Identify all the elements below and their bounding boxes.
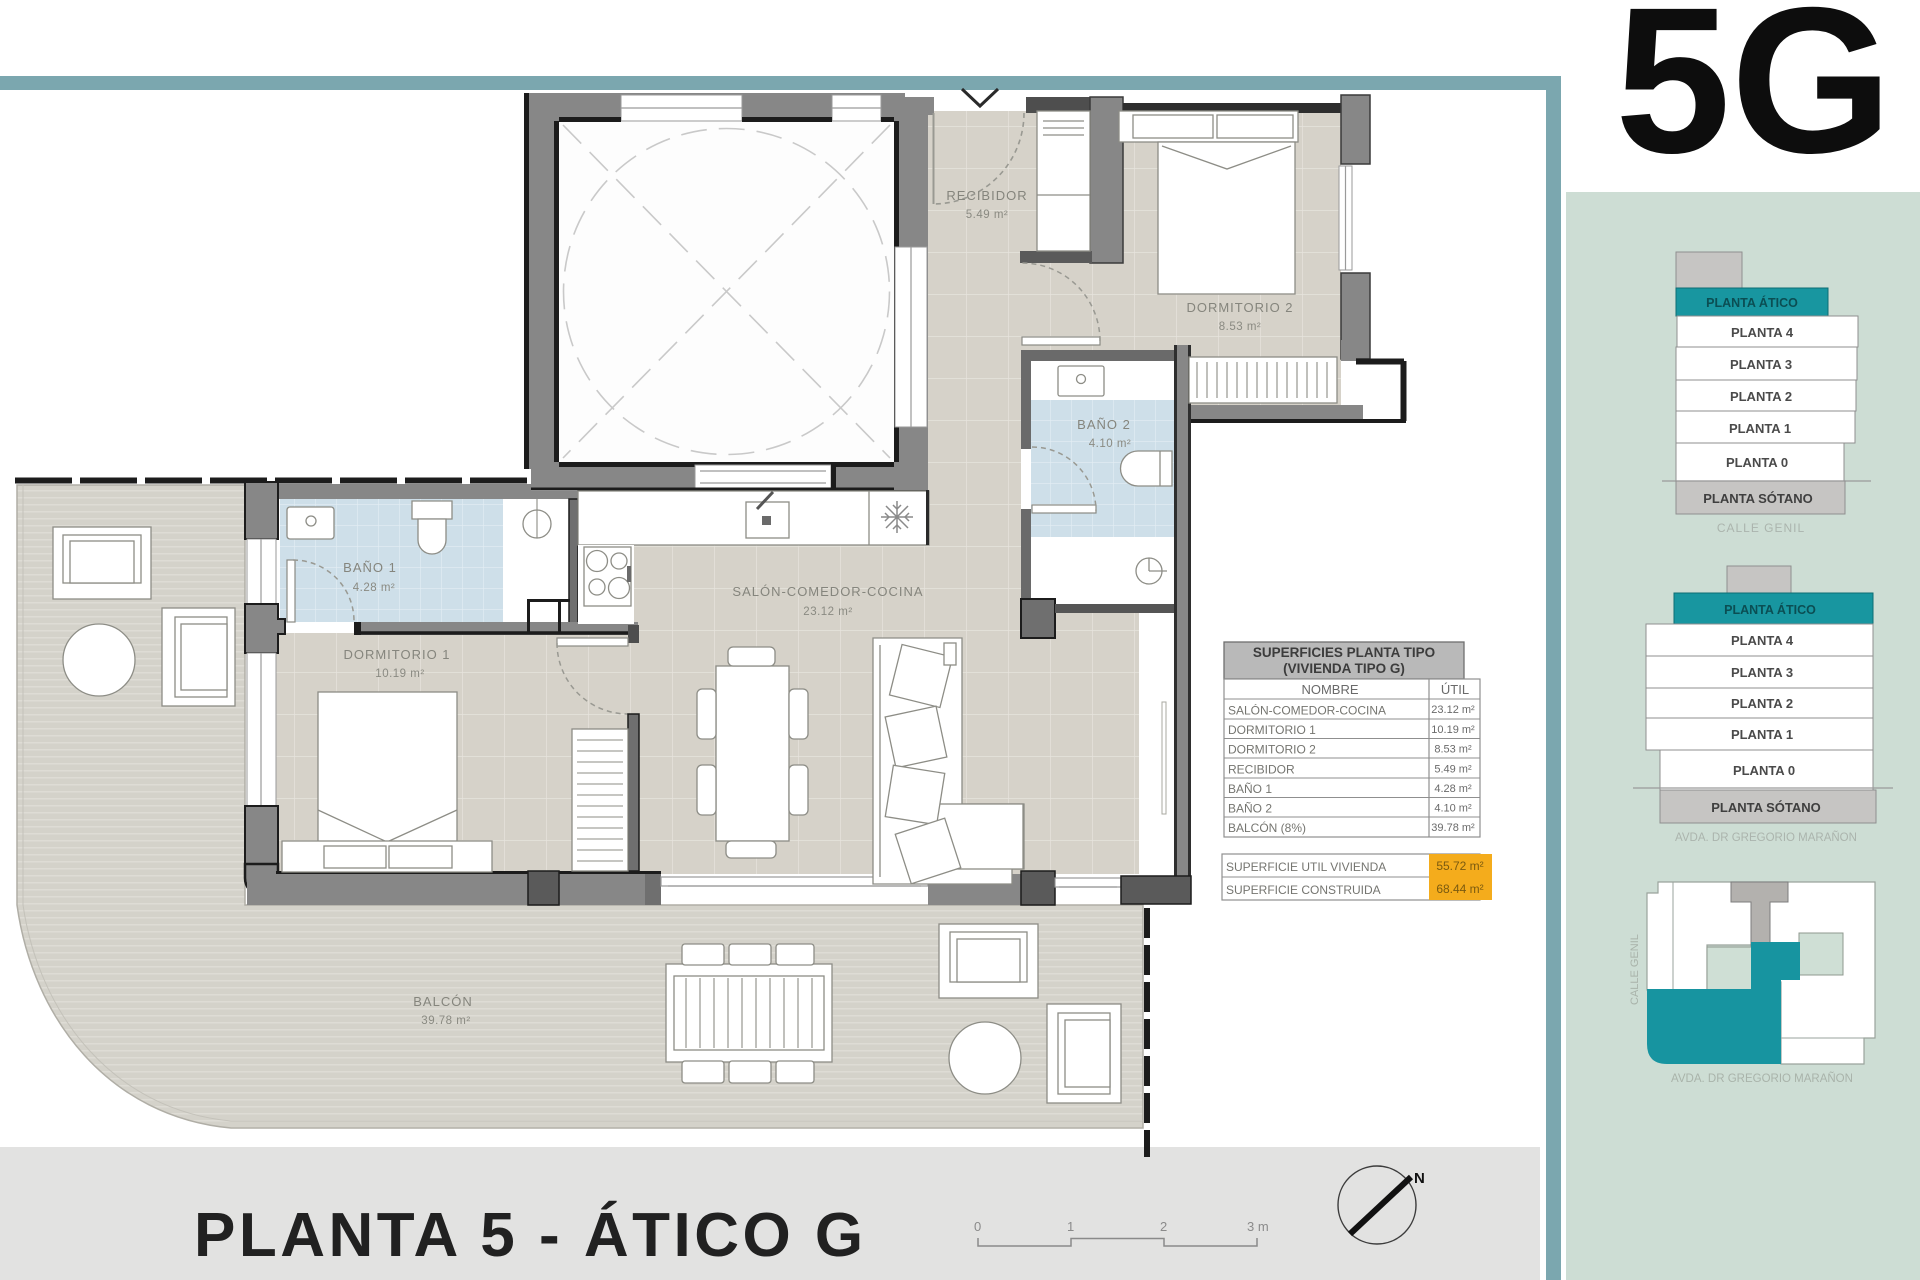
svg-text:8.53 m²: 8.53 m² [1434,744,1472,756]
svg-text:PLANTA ÁTICO: PLANTA ÁTICO [1724,602,1816,617]
svg-text:PLANTA SÓTANO: PLANTA SÓTANO [1711,800,1821,815]
svg-text:23.12 m²: 23.12 m² [803,606,852,618]
svg-text:4.10 m²: 4.10 m² [1089,438,1132,450]
svg-text:BAÑO 1: BAÑO 1 [343,560,397,575]
svg-text:5G: 5G [1615,0,1892,197]
svg-text:AVDA. DR GREGORIO MARAÑON: AVDA. DR GREGORIO MARAÑON [1671,1072,1853,1085]
svg-text:1: 1 [1067,1219,1074,1234]
svg-text:PLANTA 4: PLANTA 4 [1731,325,1794,340]
svg-text:RECIBIDOR: RECIBIDOR [946,188,1027,203]
svg-text:DORMITORIO 1: DORMITORIO 1 [1228,723,1316,737]
svg-text:N: N [1414,1170,1425,1187]
svg-text:68.44 m²: 68.44 m² [1436,882,1483,896]
svg-text:PLANTA 3: PLANTA 3 [1731,665,1793,680]
svg-text:3 m: 3 m [1247,1219,1269,1234]
svg-text:PLANTA SÓTANO: PLANTA SÓTANO [1703,491,1813,506]
svg-text:5.49 m²: 5.49 m² [966,209,1009,221]
svg-text:PLANTA 3: PLANTA 3 [1730,357,1792,372]
svg-text:PLANTA 5 - ÁTICO G: PLANTA 5 - ÁTICO G [194,1201,867,1270]
svg-text:SALÓN-COMEDOR-COCINA: SALÓN-COMEDOR-COCINA [732,584,923,599]
svg-text:(VIVIENDA TIPO G): (VIVIENDA TIPO G) [1283,661,1405,676]
svg-text:PLANTA 1: PLANTA 1 [1731,727,1793,742]
svg-text:BALCÓN (8%): BALCÓN (8%) [1228,820,1306,835]
svg-text:PLANTA 0: PLANTA 0 [1726,455,1788,470]
svg-text:4.28 m²: 4.28 m² [353,582,396,594]
svg-text:PLANTA 2: PLANTA 2 [1730,389,1792,404]
svg-text:39.78 m²: 39.78 m² [1431,822,1475,834]
svg-text:SUPERFICIES PLANTA TIPO: SUPERFICIES PLANTA TIPO [1253,645,1435,660]
svg-text:ÚTIL: ÚTIL [1441,682,1469,697]
svg-text:PLANTA 2: PLANTA 2 [1731,696,1793,711]
svg-text:5.49 m²: 5.49 m² [1434,764,1472,776]
svg-text:BAÑO 2: BAÑO 2 [1077,417,1131,432]
svg-text:0: 0 [974,1219,981,1234]
svg-text:RECIBIDOR: RECIBIDOR [1228,763,1295,777]
svg-text:10.19 m²: 10.19 m² [375,668,424,680]
svg-text:2: 2 [1160,1219,1167,1234]
svg-text:BAÑO 2: BAÑO 2 [1228,802,1272,816]
svg-text:DORMITORIO 2: DORMITORIO 2 [1186,300,1293,315]
svg-text:CALLE GENIL: CALLE GENIL [1629,934,1641,1005]
svg-text:PLANTA 4: PLANTA 4 [1731,633,1794,648]
svg-text:39.78 m²: 39.78 m² [421,1015,470,1027]
svg-text:SUPERFICIE CONSTRUIDA: SUPERFICIE CONSTRUIDA [1226,883,1381,897]
svg-text:AVDA. DR GREGORIO MARAÑON: AVDA. DR GREGORIO MARAÑON [1675,831,1857,844]
svg-text:4.10 m²: 4.10 m² [1434,803,1472,815]
svg-text:NOMBRE: NOMBRE [1301,682,1358,697]
svg-text:BAÑO 1: BAÑO 1 [1228,782,1272,796]
svg-text:PLANTA 0: PLANTA 0 [1733,763,1795,778]
svg-text:DORMITORIO 2: DORMITORIO 2 [1228,743,1316,757]
svg-text:23.12 m²: 23.12 m² [1431,704,1475,716]
svg-text:55.72 m²: 55.72 m² [1436,859,1483,873]
svg-text:4.28 m²: 4.28 m² [1434,783,1472,795]
svg-text:PLANTA ÁTICO: PLANTA ÁTICO [1706,295,1798,310]
svg-text:BALCÓN: BALCÓN [413,994,472,1009]
svg-text:SUPERFICIE UTIL VIVIENDA: SUPERFICIE UTIL VIVIENDA [1226,860,1386,874]
svg-text:SALÓN-COMEDOR-COCINA: SALÓN-COMEDOR-COCINA [1228,703,1386,718]
svg-text:PLANTA 1: PLANTA 1 [1729,421,1791,436]
svg-text:CALLE GENIL: CALLE GENIL [1717,521,1805,535]
svg-text:DORMITORIO 1: DORMITORIO 1 [343,647,450,662]
svg-text:8.53 m²: 8.53 m² [1219,321,1262,333]
svg-text:10.19 m²: 10.19 m² [1431,724,1475,736]
